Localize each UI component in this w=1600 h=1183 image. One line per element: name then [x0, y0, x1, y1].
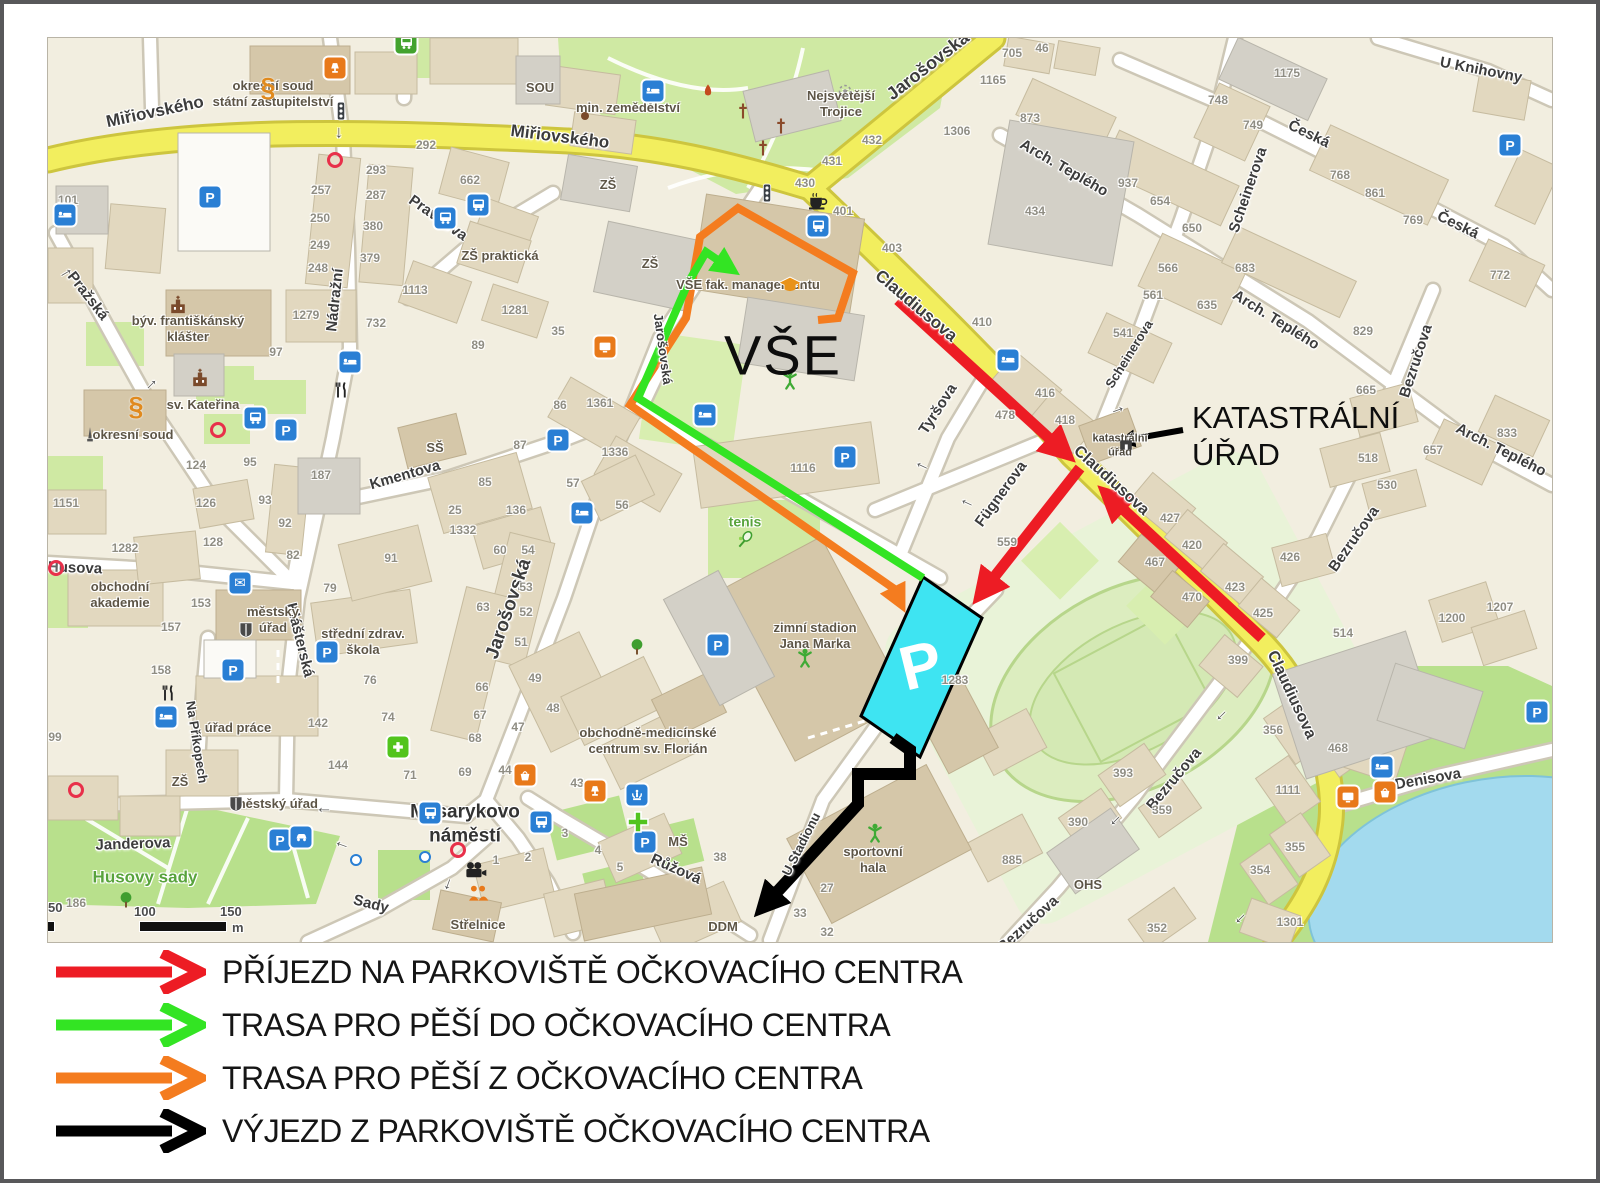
dot-blue-icon — [350, 854, 362, 866]
street-label: Bezručova — [1325, 503, 1382, 575]
legend-item-walk-to: TRASA PRO PĚŠÍ DO OČKOVACÍHO CENTRA — [54, 1003, 890, 1047]
house-number: 833 — [1497, 426, 1517, 440]
legend-exit-arrow-icon — [54, 1109, 206, 1153]
arrow-icon: → — [1109, 398, 1126, 418]
church-icon — [169, 296, 188, 315]
place-label: ZŠ praktická — [461, 248, 538, 264]
street-label: Česká — [1285, 117, 1332, 152]
house-number: 748 — [1208, 93, 1228, 107]
place-label: Střelnice — [451, 917, 506, 933]
house-number: 1116 — [790, 461, 815, 475]
callout-line1: KATASTRÁLNÍ — [1192, 400, 1399, 435]
cross-green-icon — [626, 810, 650, 834]
street-label: U Stadionu — [779, 810, 824, 878]
flame-icon — [703, 84, 714, 98]
house-number: 1 — [493, 853, 500, 867]
dot-blue-icon — [419, 851, 431, 863]
house-number: 1175 — [1274, 66, 1300, 80]
house-number: 248 — [308, 261, 328, 275]
house-number: 89 — [471, 338, 484, 352]
house-number: 250 — [310, 211, 330, 225]
signal-icon — [337, 102, 346, 121]
place-label: městský úřad — [247, 604, 299, 637]
house-number: 43 — [570, 776, 583, 790]
bed-icon — [1372, 757, 1393, 778]
street-label: Arch. Teplého — [1230, 287, 1323, 354]
house-number: 418 — [1055, 413, 1075, 427]
house-number: 44 — [498, 763, 511, 777]
house-number: 71 — [403, 768, 416, 782]
house-number: 128 — [203, 535, 223, 549]
cross-icon — [758, 141, 768, 156]
house-number: 420 — [1182, 538, 1202, 552]
street-label: Jarošovská — [651, 313, 676, 386]
house-number: 665 — [1356, 383, 1376, 397]
scale-unit: m — [232, 920, 244, 935]
house-number: 74 — [381, 710, 394, 724]
parking-icon: P — [200, 187, 221, 208]
katastralni-urad-callout: KATASTRÁLNÍÚŘAD — [1192, 400, 1399, 473]
bed-icon — [156, 707, 177, 728]
house-number: 873 — [1020, 111, 1040, 125]
parking-icon: P — [835, 447, 856, 468]
place-label: tenis — [729, 513, 762, 531]
house-number: 431 — [822, 154, 842, 168]
street-label: Miřiovského — [104, 92, 205, 132]
house-number: 393 — [1113, 766, 1133, 780]
house-number: 47 — [511, 720, 524, 734]
bus-green-icon — [396, 38, 417, 54]
house-number: 705 — [1002, 46, 1022, 60]
street-label: Kmentova — [368, 457, 442, 493]
street-label: Arch. Teplého — [1017, 136, 1111, 200]
shield-icon — [229, 796, 244, 813]
house-number: 48 — [546, 701, 559, 715]
house-number: 95 — [243, 455, 256, 469]
callout-line2: ÚŘAD — [1192, 437, 1280, 472]
house-number: 1151 — [53, 496, 79, 510]
house-number: 662 — [460, 173, 480, 187]
street-label: Na Příkopech — [183, 700, 211, 784]
house-number: 772 — [1490, 268, 1510, 282]
lamp-icon — [325, 58, 346, 79]
tv-icon — [1338, 787, 1359, 808]
house-number: 5 — [617, 860, 624, 874]
scale-100: 100 — [134, 904, 156, 919]
house-number: 1207 — [1487, 600, 1514, 614]
parking-icon: P — [1527, 702, 1548, 723]
arrow-icon: → — [913, 458, 930, 478]
house-number: 54 — [521, 543, 534, 557]
house-number: 559 — [997, 535, 1017, 549]
house-number: 861 — [1365, 186, 1385, 200]
place-label: min. zemědělství — [576, 100, 680, 116]
arrow-icon: → — [1215, 707, 1232, 727]
house-number: 67 — [473, 708, 486, 722]
arrow-icon: → — [57, 261, 74, 281]
house-number: 35 — [551, 324, 564, 338]
place-label: obchodně-medicínské centrum sv. Florián — [579, 725, 716, 758]
street-label: Bezručova — [1396, 322, 1436, 399]
fountain-icon — [627, 785, 648, 806]
place-label: sportovní hala — [843, 844, 902, 877]
basket-icon — [1375, 782, 1396, 803]
street-label: Sady — [352, 891, 391, 916]
house-number: 427 — [1160, 511, 1180, 525]
parking-icon: P — [317, 642, 338, 663]
street-label: Janderova — [95, 834, 171, 854]
house-number: 561 — [1143, 288, 1163, 302]
house-number: 124 — [186, 458, 206, 472]
house-number: 416 — [1035, 386, 1055, 400]
house-number: 432 — [862, 133, 882, 147]
arrow-icon: → — [333, 837, 350, 857]
parking-icon: P — [1500, 135, 1521, 156]
house-number: 425 — [1253, 606, 1273, 620]
house-number: 403 — [882, 241, 902, 255]
house-number: 1301 — [1277, 915, 1304, 929]
circle-red-icon — [450, 842, 466, 858]
place-label: býv. františkánský klášter — [132, 313, 244, 346]
house-number: 38 — [713, 850, 726, 864]
house-number: 380 — [363, 219, 383, 233]
house-number: 1200 — [1439, 611, 1466, 625]
house-number: 46 — [1035, 41, 1048, 55]
scale-bar-segment — [140, 922, 226, 931]
place-label: sv. Kateřina — [167, 397, 240, 413]
place-label: obchodní akademie — [90, 579, 149, 612]
house-number: 69 — [458, 765, 471, 779]
house-number: 66 — [475, 680, 488, 694]
street-label: Denisova — [1394, 765, 1463, 793]
place-label: ZŠ — [600, 177, 617, 193]
legend-exit-label: VÝJEZD Z PARKOVIŠTĚ OČKOVACÍHO CENTRA — [222, 1113, 930, 1150]
house-number: 434 — [1025, 204, 1045, 218]
arrow-icon: → — [1234, 910, 1251, 930]
scale-bar-segment — [48, 922, 54, 931]
house-number: 91 — [384, 551, 397, 565]
arrow-icon: → — [1109, 812, 1126, 832]
house-number: 56 — [615, 498, 628, 512]
house-number: 410 — [972, 315, 992, 329]
house-number: 99 — [48, 730, 61, 744]
parking-icon: P — [635, 832, 656, 853]
house-number: 60 — [493, 543, 506, 557]
place-label: Husovy sady — [93, 866, 198, 887]
house-number: 93 — [258, 493, 271, 507]
house-number: 3 — [562, 826, 569, 840]
legend-item-walk-from: TRASA PRO PĚŠÍ Z OČKOVACÍHO CENTRA — [54, 1056, 862, 1100]
house-number: 79 — [323, 581, 336, 595]
legend-walk-to-arrow-icon — [54, 1003, 206, 1047]
parking-icon: P — [548, 430, 569, 451]
place-label: SŠ — [426, 440, 443, 456]
house-number: 49 — [528, 671, 541, 685]
legend-item-arrival: PŘÍJEZD NA PARKOVIŠTĚ OČKOVACÍHO CENTRA — [54, 950, 962, 994]
scale-50: 50 — [48, 900, 62, 915]
parking-icon: P — [708, 635, 729, 656]
legend-walk-to-label: TRASA PRO PĚŠÍ DO OČKOVACÍHO CENTRA — [222, 1007, 890, 1044]
legend-item-exit: VÝJEZD Z PARKOVIŠTĚ OČKOVACÍHO CENTRA — [54, 1109, 930, 1153]
house-number: 97 — [269, 345, 282, 359]
house-number: 25 — [448, 503, 461, 517]
arrow-icon: → — [958, 495, 975, 515]
house-number: 126 — [196, 496, 216, 510]
house-number: 1279 — [293, 308, 320, 322]
house-number: 1332 — [450, 523, 477, 537]
circle-red-icon — [327, 152, 343, 168]
bus-icon — [531, 812, 552, 833]
bldg-dark-icon — [1119, 439, 1133, 451]
grad-cap-icon — [777, 276, 803, 295]
street-label: Jarošovská — [882, 38, 973, 105]
house-number: 430 — [795, 176, 815, 190]
house-number: 401 — [833, 204, 853, 218]
house-number: 292 — [416, 138, 436, 152]
house-number: 82 — [286, 548, 299, 562]
house-number: 749 — [1243, 118, 1263, 132]
ring-dot-icon — [838, 84, 853, 99]
house-number: 144 — [328, 758, 348, 772]
house-number: 157 — [161, 620, 181, 634]
bed-icon — [998, 350, 1019, 371]
paragraph-icon: § — [260, 73, 275, 104]
taxi-icon — [291, 827, 312, 848]
house-number: 354 — [1250, 863, 1270, 877]
bed-icon — [643, 81, 664, 102]
house-number: 92 — [278, 516, 291, 530]
restaurant-icon — [161, 684, 176, 702]
bus-icon — [808, 216, 829, 237]
house-number: 352 — [1147, 921, 1167, 935]
bus-icon — [420, 803, 441, 824]
bed-icon — [572, 503, 593, 524]
legend-walk-from-label: TRASA PRO PĚŠÍ Z OČKOVACÍHO CENTRA — [222, 1060, 862, 1097]
house-number: 566 — [1158, 261, 1178, 275]
house-number: 635 — [1197, 298, 1217, 312]
house-number: 33 — [793, 906, 806, 920]
house-number: 1306 — [944, 124, 971, 138]
house-number: 654 — [1150, 194, 1170, 208]
house-number: 470 — [1182, 590, 1202, 604]
lamp-icon — [585, 781, 606, 802]
vse-big-label: VŠE — [724, 323, 842, 388]
house-number: 355 — [1285, 840, 1305, 854]
bed-icon — [340, 352, 361, 373]
map-label-layer: MiřiovskéhoMiřiovskéhoJarošovskáClaudius… — [48, 38, 1552, 942]
cross-icon — [776, 119, 786, 134]
house-number: 293 — [366, 163, 386, 177]
paragraph-icon: § — [128, 392, 143, 423]
church-icon — [191, 369, 210, 388]
house-number: 57 — [566, 476, 579, 490]
tennis-icon — [736, 531, 754, 549]
parking-icon: P — [276, 420, 297, 441]
bed-icon — [695, 405, 716, 426]
house-number: 68 — [468, 731, 481, 745]
parking-icon: P — [223, 660, 244, 681]
house-number: 153 — [191, 596, 211, 610]
house-number: 768 — [1330, 168, 1350, 182]
tv-icon — [595, 337, 616, 358]
house-number: 32 — [820, 925, 833, 939]
dome-icon — [580, 111, 590, 121]
house-number: 27 — [820, 881, 833, 895]
circle-red-icon — [68, 782, 84, 798]
arrow-icon: → — [142, 373, 159, 393]
house-number: 136 — [506, 503, 526, 517]
street-label: Scheinerova — [1225, 145, 1270, 235]
cross-icon — [738, 104, 748, 119]
house-number: 142 — [308, 716, 328, 730]
house-number: 683 — [1235, 261, 1255, 275]
scale-150: 150 — [220, 904, 242, 919]
legend-arrival-label: PŘÍJEZD NA PARKOVIŠTĚ OČKOVACÍHO CENTRA — [222, 954, 962, 991]
street-label: U Knihovny — [1438, 54, 1523, 87]
house-number: 356 — [1263, 723, 1283, 737]
shield-icon — [239, 622, 254, 639]
restaurant-icon — [334, 381, 349, 399]
house-number: 86 — [553, 398, 566, 412]
house-number: 1111 — [1276, 783, 1301, 797]
house-number: 287 — [366, 188, 386, 202]
camera-icon — [465, 862, 487, 879]
house-number: 359 — [1152, 803, 1172, 817]
monument-icon — [86, 427, 95, 443]
street-label: Nádražní — [323, 268, 347, 333]
bus-icon — [245, 408, 266, 429]
house-number: 379 — [360, 251, 380, 265]
place-label: úřad práce — [205, 720, 271, 736]
house-number: 468 — [1328, 741, 1348, 755]
playground-icon — [797, 648, 814, 668]
circle-red-icon — [48, 560, 64, 576]
pharmacy-icon — [388, 737, 409, 758]
house-number: 52 — [519, 605, 532, 619]
place-label: MŠ — [668, 834, 688, 850]
street-label: Tyršova — [916, 381, 961, 438]
place-label: zimní stadion Jana Marka — [773, 620, 856, 653]
house-number: 1165 — [980, 73, 1006, 87]
mail-icon: ✉ — [230, 573, 251, 594]
people-icon — [467, 885, 489, 902]
place-label: SOU — [526, 80, 554, 96]
house-number: 829 — [1353, 324, 1373, 338]
basket-icon — [515, 765, 536, 786]
bus-icon — [435, 208, 456, 229]
tree-icon — [630, 638, 645, 656]
signal-icon — [763, 184, 772, 203]
house-number: 187 — [311, 468, 331, 482]
house-number: 426 — [1280, 550, 1300, 564]
street-label: Fügnerova — [972, 458, 1031, 530]
house-number: 1113 — [402, 283, 427, 297]
house-number: 732 — [366, 316, 386, 330]
street-label: Bezručova — [994, 892, 1062, 942]
house-number: 2 — [525, 850, 532, 864]
house-number: 650 — [1182, 221, 1202, 235]
house-number: 1282 — [112, 541, 139, 555]
house-number: 4 — [595, 843, 602, 857]
bed-icon — [55, 205, 76, 226]
house-number: 53 — [519, 580, 532, 594]
house-number: 937 — [1118, 176, 1138, 190]
house-number: 1361 — [587, 396, 614, 410]
street-label: Claudiusova — [871, 266, 961, 346]
house-number: 467 — [1145, 555, 1165, 569]
house-number: 249 — [310, 238, 330, 252]
house-number: 51 — [514, 635, 527, 649]
place-label: DDM — [708, 919, 738, 935]
street-label: Česká — [1434, 208, 1481, 243]
house-number: 85 — [478, 475, 491, 489]
house-number: 530 — [1377, 478, 1397, 492]
house-number: 478 — [995, 408, 1015, 422]
place-label: ZŠ — [642, 256, 659, 272]
arrow-icon: → — [316, 802, 333, 822]
scale-bar: 50 100 150 m — [48, 900, 308, 940]
house-number: 541 — [1113, 326, 1133, 340]
house-number: 63 — [476, 600, 489, 614]
house-number: 514 — [1333, 626, 1353, 640]
place-label: okresní soud — [93, 427, 174, 443]
map-canvas[interactable]: MiřiovskéhoMiřiovskéhoJarošovskáClaudius… — [48, 38, 1552, 942]
street-label: Růžová — [648, 850, 704, 887]
house-number: 1281 — [502, 303, 529, 317]
house-number: 769 — [1403, 213, 1423, 227]
bus-icon — [468, 195, 489, 216]
house-number: 399 — [1228, 653, 1248, 667]
place-label: ZŠ — [172, 774, 189, 790]
place-label: městský úřad — [234, 796, 318, 812]
coffee-icon — [808, 192, 829, 210]
parking-icon: P — [270, 830, 291, 851]
house-number: 257 — [311, 183, 331, 197]
legend-walk-from-arrow-icon — [54, 1056, 206, 1100]
circle-red-icon — [210, 422, 226, 438]
arrow-icon: → — [442, 875, 459, 895]
house-number: 1336 — [602, 445, 629, 459]
page: MiřiovskéhoMiřiovskéhoJarošovskáClaudius… — [0, 0, 1600, 1183]
legend-arrival-arrow-icon — [54, 950, 206, 994]
place-label: OHS — [1074, 877, 1102, 893]
house-number: 657 — [1423, 443, 1443, 457]
playground-icon — [867, 823, 884, 843]
house-number: 390 — [1068, 815, 1088, 829]
house-number: 885 — [1002, 853, 1022, 867]
house-number: 76 — [363, 673, 376, 687]
house-number: 87 — [513, 438, 526, 452]
arrow-icon: → — [333, 123, 350, 143]
house-number: 158 — [151, 663, 171, 677]
house-number: 423 — [1225, 580, 1245, 594]
street-label: Miřiovského — [510, 121, 611, 153]
